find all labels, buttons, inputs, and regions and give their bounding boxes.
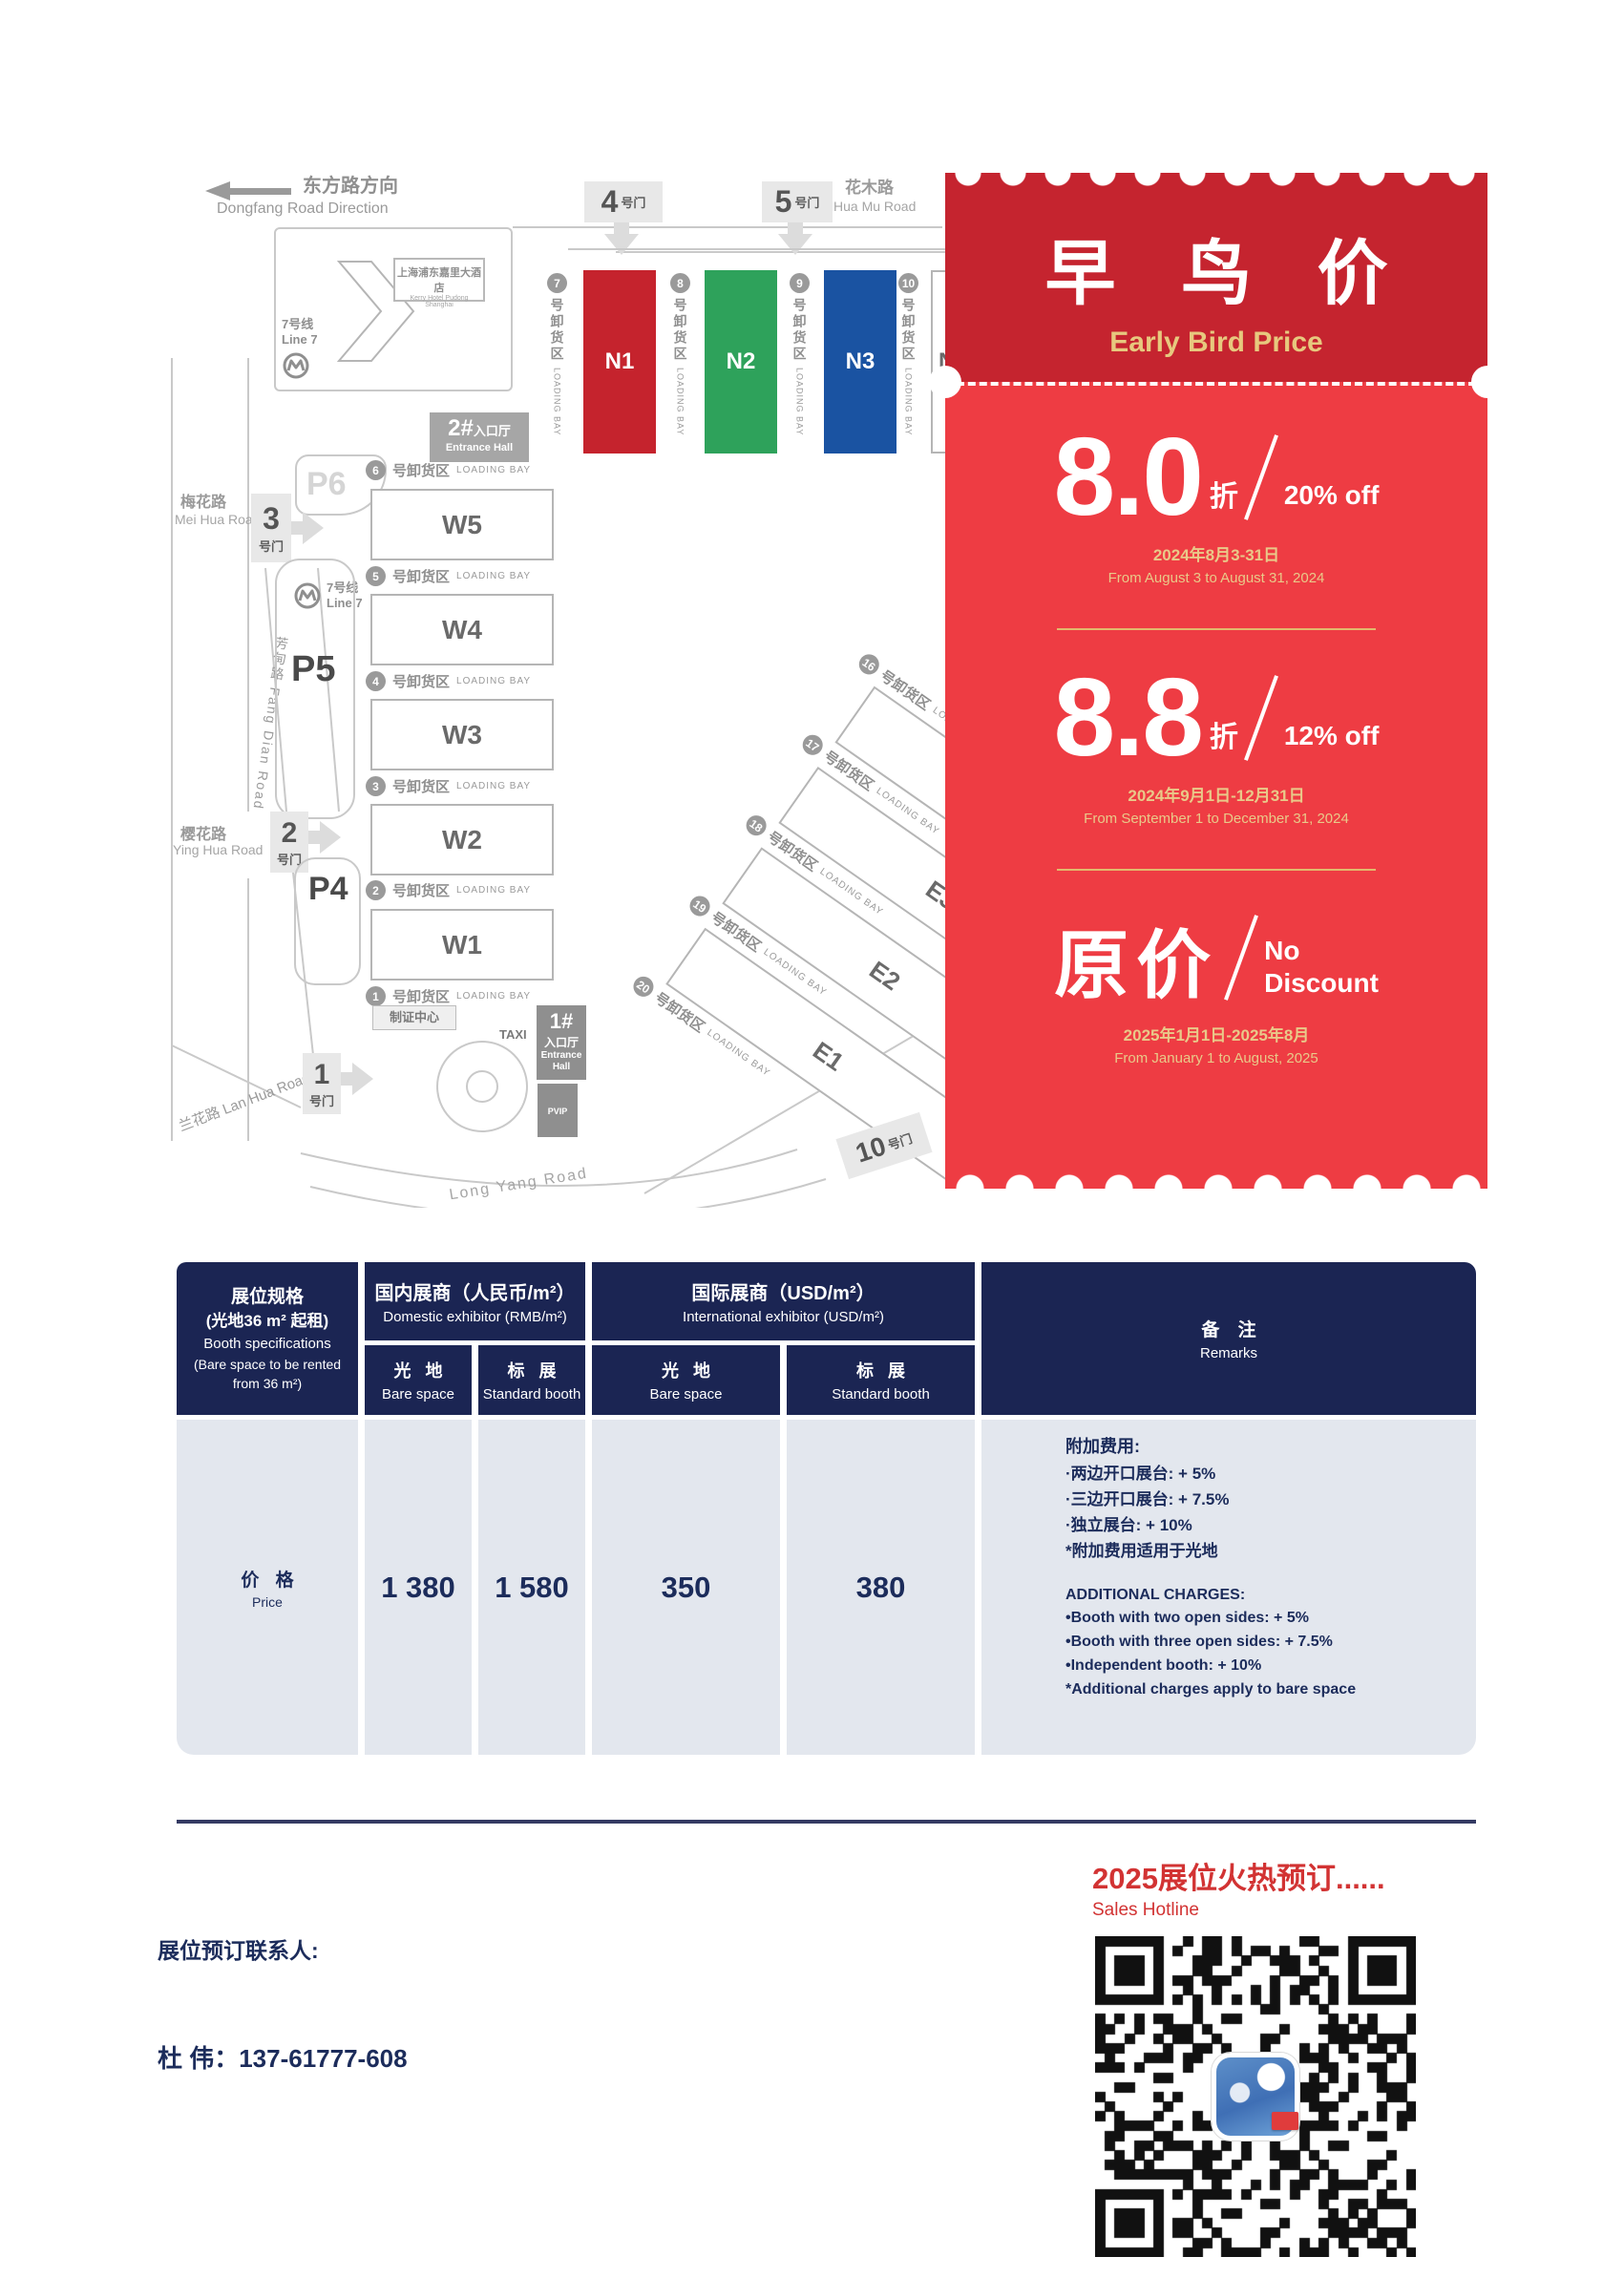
huamu-road-en: Hua Mu Road xyxy=(833,199,916,214)
tier-1-date-zh: 2024年8月3-31日 xyxy=(945,541,1487,565)
hall-n3: N3 xyxy=(824,270,896,453)
dongfang-road-label-zh: 东方路方向 xyxy=(303,170,398,198)
entrance-2-en: Entrance Hall xyxy=(430,442,529,453)
roundabout-inner xyxy=(466,1070,498,1103)
hall-w1: W1 xyxy=(370,909,554,981)
discount-tier-2: 8.8 折 12% off 2024年9月1日-12月31日 From Sept… xyxy=(945,672,1487,827)
loading-bay-4-number: 4 xyxy=(366,671,386,691)
gate-5-suffix: 号门 xyxy=(794,193,819,211)
price-domestic-bare: 1 380 xyxy=(365,1420,472,1755)
loading-bay-1-number: 1 xyxy=(366,986,386,1006)
hall-e1-label: E1 xyxy=(808,1035,850,1077)
coupon-title-en: Early Bird Price xyxy=(945,327,1487,359)
hotel-label: 上海浦东嘉里大酒店 Kerry Hotel Pudong Shanghai xyxy=(393,258,485,302)
hall-w2: W2 xyxy=(370,804,554,875)
international-bare-space-header: 光 地 Bare space xyxy=(592,1345,780,1415)
hotline-title: 2025展位火热预订...... xyxy=(1092,1854,1385,1897)
meihua-road-en: Mei Hua Road xyxy=(175,512,261,527)
coupon-body: 8.0 折 20% off 2024年8月3-31日 From August 3… xyxy=(945,382,1487,1189)
loading-bay-6-en: LOADING BAY xyxy=(456,465,531,475)
slash-divider xyxy=(1224,915,1258,1001)
remarks-en-line2: •Booth with three open sides: + 7.5% xyxy=(1065,1631,1333,1655)
standard-booth-zh: 标 展 xyxy=(502,1358,560,1382)
booth-specs-en3: from 36 m²) xyxy=(233,1374,302,1393)
hall-w4-label: W4 xyxy=(442,615,482,645)
hall-w5-label: W5 xyxy=(442,510,482,540)
loading-bay-3: 3 号卸货区 LOADING BAY xyxy=(366,776,531,796)
remarks-header-en: Remarks xyxy=(1200,1345,1257,1361)
gate-3: 3 号门 xyxy=(251,494,291,562)
gate-4: 4 号门 xyxy=(584,181,663,222)
parking-p5: P5 xyxy=(291,649,335,690)
domestic-header-zh: 国内展商（人民币/m²） xyxy=(375,1277,576,1305)
qr-center-logo xyxy=(1212,2053,1299,2141)
metro-line7-hotel: 7号线Line 7 xyxy=(282,317,318,380)
hall-n1: N1 xyxy=(583,270,656,453)
loading-bay-9-en: LOADING BAY xyxy=(795,368,805,435)
price-table: 展位规格 (光地36 m² 起租) Booth specifications (… xyxy=(177,1262,1476,1755)
tier-3-date-en: From January 1 to August, 2025 xyxy=(945,1050,1487,1066)
loading-bay-5: 5 号卸货区 LOADING BAY xyxy=(366,566,531,586)
remarks-header: 备 注 Remarks xyxy=(981,1262,1476,1415)
domestic-exhibitor-header: 国内展商（人民币/m²） Domestic exhibitor (RMB/m²) xyxy=(365,1262,585,1340)
hall-n2-label: N2 xyxy=(727,348,756,375)
yinghua-road-zh: 樱花路 xyxy=(180,821,226,844)
n-block-top-line xyxy=(568,248,981,250)
parking-vip: PVIP xyxy=(538,1084,578,1137)
price-domestic-standard: 1 580 xyxy=(478,1420,585,1755)
tier-3-date-zh: 2025年1月1日-2025年8月 xyxy=(945,1022,1487,1045)
loading-bay-6: 6 号卸货区 LOADING BAY xyxy=(366,460,531,480)
loading-bay-10-number: 10 xyxy=(898,273,918,293)
qr-code-block xyxy=(1095,1936,1416,2257)
parking-vip-sub: VIP xyxy=(554,1107,568,1116)
hall-n1-label: N1 xyxy=(605,348,635,375)
parking-p4: P4 xyxy=(308,871,348,908)
gate-1: 1 号门 xyxy=(303,1053,341,1114)
booth-specs-zh1: 展位规格 xyxy=(231,1284,304,1311)
entrance-2-zh: 入口厅 xyxy=(474,424,511,438)
gold-divider xyxy=(1057,628,1376,630)
gate-1-number: 1 xyxy=(314,1059,330,1091)
loading-bay-8-number: 8 xyxy=(670,273,690,293)
flyer-page: 东方路方向 Dongfang Road Direction 上海浦东嘉里大酒店 … xyxy=(0,0,1624,2278)
loading-bay-5-zh: 号卸货区 xyxy=(392,566,450,586)
discount-tier-1: 8.0 折 20% off 2024年8月3-31日 From August 3… xyxy=(945,432,1487,586)
tier-2-date-en: From September 1 to December 31, 2024 xyxy=(945,811,1487,827)
international-header-zh: 国际展商（USD/m²） xyxy=(691,1277,875,1305)
hotline-subtitle: Sales Hotline xyxy=(1092,1900,1199,1921)
loading-bay-6-zh: 号卸货区 xyxy=(392,460,450,480)
loading-bay-1-en: LOADING BAY xyxy=(456,991,531,1002)
tier-1-unit: 折 xyxy=(1210,473,1238,515)
remarks-en-line3: •Independent booth: + 10% xyxy=(1065,1655,1261,1678)
yinghua-road-en: Ying Hua Road xyxy=(173,842,263,857)
tier-1-discount: 8.0 xyxy=(1054,432,1202,522)
remarks-zh-line3: ·独立展台: + 10% xyxy=(1065,1512,1192,1538)
hall-w3-label: W3 xyxy=(442,720,482,750)
bare-space-zh: 光 地 xyxy=(389,1358,447,1382)
loading-bay-1: 1 号卸货区 LOADING BAY xyxy=(366,986,531,1006)
dongfang-direction-arrow-icon xyxy=(205,181,293,200)
meihua-road-zh: 梅花路 xyxy=(180,489,226,512)
gate-4-suffix: 号门 xyxy=(621,193,645,211)
standard-booth-en: Standard booth xyxy=(832,1386,930,1403)
tier-2-unit: 折 xyxy=(1210,713,1238,755)
loading-bay-7-number: 7 xyxy=(547,273,567,293)
price-international-standard: 380 xyxy=(787,1420,975,1755)
bare-space-zh: 光 地 xyxy=(657,1358,715,1382)
hall-w1-label: W1 xyxy=(442,930,482,960)
tier-3-label: 原价 xyxy=(1054,928,1218,1002)
remarks-zh-line2: ·三边开口展台: + 7.5% xyxy=(1065,1487,1229,1512)
tier-2-discount: 8.8 xyxy=(1054,672,1202,763)
loading-bay-9-zh: 号卸货区 xyxy=(791,298,810,363)
loading-bay-10-zh: 号卸货区 xyxy=(899,298,918,363)
loading-bay-10-en: LOADING BAY xyxy=(904,368,914,435)
remarks-zh-line1: ·两边开口展台: + 5% xyxy=(1065,1461,1215,1487)
price-international-bare: 350 xyxy=(592,1420,780,1755)
international-exhibitor-header: 国际展商（USD/m²） International exhibitor (US… xyxy=(592,1262,975,1340)
entrance-2-number: 2# xyxy=(448,415,474,441)
hall-w5: W5 xyxy=(370,489,554,560)
hall-w3: W3 xyxy=(370,699,554,770)
loading-bay-4: 4 号卸货区 LOADING BAY xyxy=(366,671,531,691)
tier-1-off: 20% off xyxy=(1284,480,1380,511)
tier-1-date-en: From August 3 to August 31, 2024 xyxy=(945,570,1487,586)
dongfang-road-label-en: Dongfang Road Direction xyxy=(217,200,389,218)
hall-w4: W4 xyxy=(370,594,554,665)
coupon-header: 早 鸟 价 Early Bird Price xyxy=(945,173,1487,382)
remarks-zh-line4: *附加费用适用于光地 xyxy=(1065,1538,1218,1564)
booth-specs-en2: (Bare space to be rented xyxy=(194,1355,341,1374)
entrance-hall-1: 1#入口厅 EntranceHall xyxy=(537,1005,586,1080)
qr-flag-icon xyxy=(1272,2112,1298,2130)
coupon-title-zh: 早 鸟 价 xyxy=(945,173,1487,319)
hall-e2-label: E2 xyxy=(864,955,906,997)
scallop-edge-bottom xyxy=(945,1171,1487,1189)
badge-center-label: 制证中心 xyxy=(372,1005,456,1030)
loading-bay-7-en: LOADING BAY xyxy=(553,368,562,435)
loading-bay-2-number: 2 xyxy=(366,880,386,900)
venue-map: 东方路方向 Dongfang Road Direction 上海浦东嘉里大酒店 … xyxy=(167,153,981,1208)
slash-divider xyxy=(1244,675,1278,761)
contact-label: 展位预订联系人: xyxy=(158,1932,319,1965)
loading-bay-9: 9 号卸货区 LOADING BAY xyxy=(790,273,810,435)
gold-divider xyxy=(1057,869,1376,871)
gate-5: 5 号门 xyxy=(762,181,833,222)
price-row-label: 价 格 Price xyxy=(177,1420,358,1755)
entrance-hall-2: 2#入口厅 Entrance Hall xyxy=(430,412,529,462)
domestic-bare-space-header: 光 地 Bare space xyxy=(365,1345,472,1415)
domestic-standard-booth-header: 标 展 Standard booth xyxy=(478,1345,585,1415)
hall-n2: N2 xyxy=(705,270,777,453)
gate-3-suffix: 号门 xyxy=(259,537,284,555)
loading-bay-7: 7 号卸货区 LOADING BAY xyxy=(547,273,567,435)
loading-bay-2-zh: 号卸货区 xyxy=(392,880,450,900)
price-label-zh: 价 格 xyxy=(235,1566,299,1592)
entrance-1-en2: Hall xyxy=(553,1062,570,1072)
hotel-name-zh: 上海浦东嘉里大酒店 xyxy=(395,264,483,295)
gate-4-number: 4 xyxy=(601,184,619,220)
loading-bay-5-en: LOADING BAY xyxy=(456,571,531,581)
scallop-edge-top xyxy=(945,173,1487,189)
booth-specs-en1: Booth specifications xyxy=(203,1334,330,1355)
loading-bay-4-en: LOADING BAY xyxy=(456,676,531,686)
loading-bay-8: 8 号卸货区 LOADING BAY xyxy=(670,273,690,435)
tier-3-off: No Discount xyxy=(1264,935,1379,999)
remarks-en-line4: *Additional charges apply to bare space xyxy=(1065,1678,1356,1702)
loading-bay-2: 2 号卸货区 LOADING BAY xyxy=(366,880,531,900)
gate-3-number: 3 xyxy=(263,501,280,537)
early-bird-price-panel: 早 鸟 价 Early Bird Price 8.0 折 20% off 202… xyxy=(945,173,1487,1189)
tier-2-off: 12% off xyxy=(1284,721,1380,751)
hall-n3-label: N3 xyxy=(846,348,875,375)
discount-tier-3: 原价 No Discount 2025年1月1日-2025年8月 From Ja… xyxy=(945,913,1487,1066)
entrance-1-en1: Entrance xyxy=(541,1050,582,1061)
loading-bay-8-en: LOADING BAY xyxy=(676,368,685,435)
standard-booth-zh: 标 展 xyxy=(852,1358,910,1382)
entrance-1-zh: 入口厅 xyxy=(544,1036,579,1049)
gate-10-suffix: 号门 xyxy=(885,1128,915,1153)
loading-bay-6-number: 6 xyxy=(366,460,386,480)
col-booth-specs-header: 展位规格 (光地36 m² 起租) Booth specifications (… xyxy=(177,1262,358,1415)
tier-3-off-line2: Discount xyxy=(1264,968,1379,998)
taxi-label: TAXI xyxy=(499,1027,527,1042)
ticket-notch-right xyxy=(1471,366,1504,398)
loading-bay-3-number: 3 xyxy=(366,776,386,796)
slash-divider xyxy=(1244,434,1278,520)
tier-2-date-zh: 2024年9月1日-12月31日 xyxy=(945,782,1487,806)
loading-bay-3-en: LOADING BAY xyxy=(456,781,531,791)
loading-bay-5-number: 5 xyxy=(366,566,386,586)
gate-2-number: 2 xyxy=(282,817,298,850)
bare-space-en: Bare space xyxy=(382,1386,454,1403)
remarks-zh-title: 附加费用: xyxy=(1065,1433,1140,1461)
loading-bay-4-zh: 号卸货区 xyxy=(392,671,450,691)
loading-bay-1-zh: 号卸货区 xyxy=(392,986,450,1006)
loading-bay-9-number: 9 xyxy=(790,273,810,293)
footer-divider xyxy=(177,1820,1476,1824)
tier-3-off-line1: No xyxy=(1264,936,1299,965)
remarks-en-line1: •Booth with two open sides: + 5% xyxy=(1065,1607,1309,1631)
remarks-en-title: ADDITIONAL CHARGES: xyxy=(1065,1584,1245,1608)
loading-bay-2-en: LOADING BAY xyxy=(456,885,531,896)
metro-line7-en: Line 7 xyxy=(282,332,318,347)
hall-w2-label: W2 xyxy=(442,825,482,855)
loading-bay-8-zh: 号卸货区 xyxy=(671,298,690,363)
domestic-header-en: Domestic exhibitor (RMB/m²) xyxy=(383,1309,567,1325)
international-header-en: International exhibitor (USD/m²) xyxy=(683,1309,884,1325)
remarks-header-zh: 备 注 xyxy=(1194,1316,1262,1341)
loading-bay-10: 10 号卸货区 LOADING BAY xyxy=(898,273,918,435)
entrance-1-number: 1# xyxy=(550,1009,573,1033)
gate-5-number: 5 xyxy=(775,184,792,220)
price-label-en: Price xyxy=(252,1594,283,1610)
booth-specs-zh2: (光地36 m² 起租) xyxy=(206,1310,328,1334)
remarks-cell: 附加费用: ·两边开口展台: + 5% ·三边开口展台: + 7.5% ·独立展… xyxy=(981,1420,1476,1755)
hotel-name-en: Kerry Hotel Pudong Shanghai xyxy=(395,295,483,308)
loading-bay-3-zh: 号卸货区 xyxy=(392,776,450,796)
huamu-road-zh: 花木路 xyxy=(845,174,894,198)
gate-10-number: 10 xyxy=(852,1130,890,1169)
international-standard-booth-header: 标 展 Standard booth xyxy=(787,1345,975,1415)
metro-icon xyxy=(282,351,310,380)
metro-line7-zh: 7号线 xyxy=(282,317,313,331)
bare-space-en: Bare space xyxy=(650,1386,723,1403)
standard-booth-en: Standard booth xyxy=(483,1386,581,1403)
contact-phone: 杜 伟：137-61777-608 xyxy=(158,2039,408,2075)
gate-1-suffix: 号门 xyxy=(309,1091,334,1109)
ticket-notch-left xyxy=(929,366,961,398)
loading-bay-7-zh: 号卸货区 xyxy=(548,298,567,363)
